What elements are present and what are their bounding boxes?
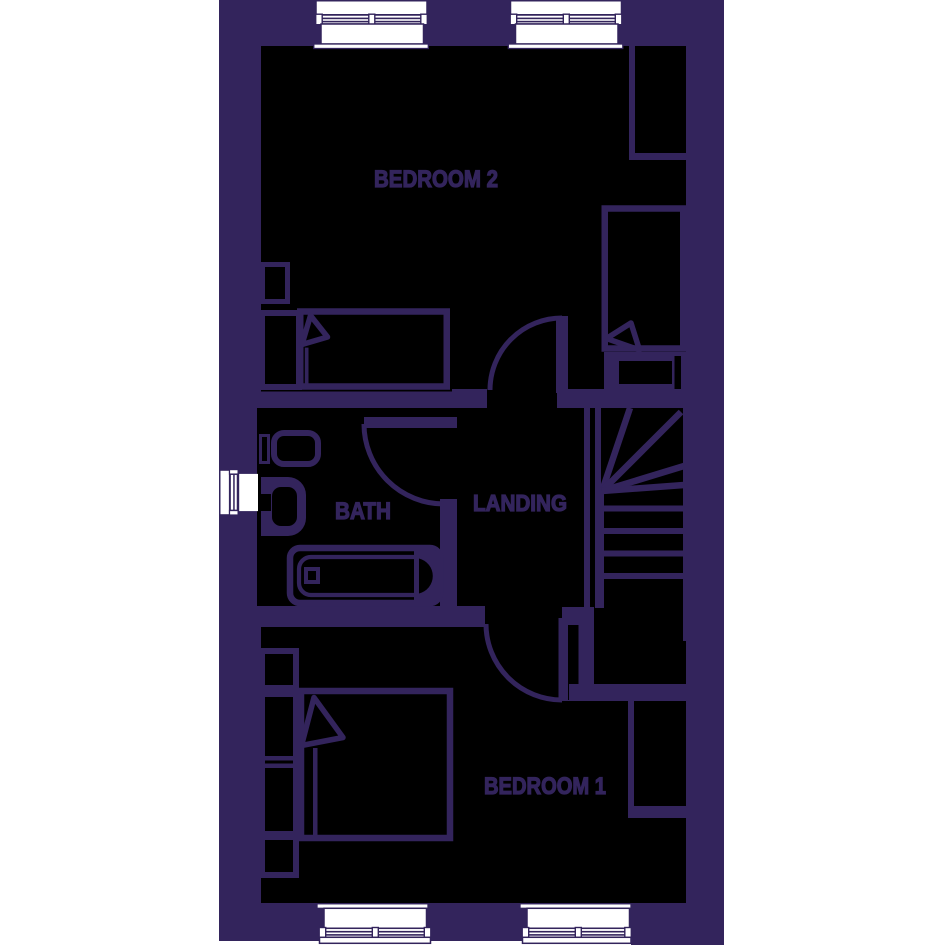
svg-text:BEDROOM 2: BEDROOM 2: [374, 166, 498, 193]
svg-text:BATH: BATH: [335, 498, 391, 525]
svg-text:LANDING: LANDING: [473, 490, 567, 516]
svg-text:BEDROOM 1: BEDROOM 1: [484, 773, 606, 800]
